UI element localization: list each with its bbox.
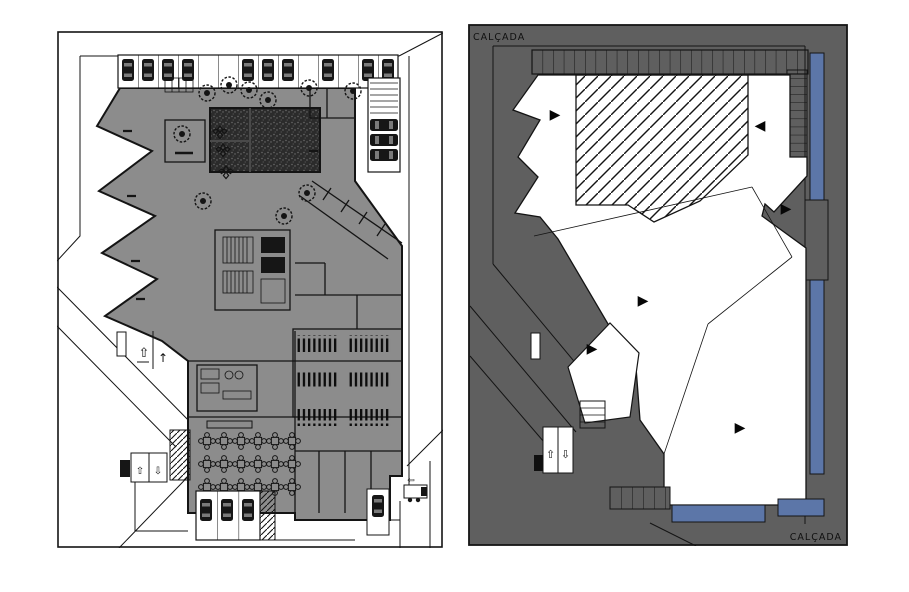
sidewalk-label-top: CALÇADA xyxy=(473,32,525,43)
site-plan-panel: CALÇADA ▶ ◀ ▶ ▶ ▶ ▶ ⇧ ⇩ xyxy=(468,24,848,546)
direction-marker: ◀ xyxy=(755,118,766,134)
ramp-down-arrow: ⇩ xyxy=(154,466,162,477)
blue-strip xyxy=(810,280,824,474)
sidewalk-label-bottom: CALÇADA xyxy=(790,532,842,543)
entry-door xyxy=(117,332,126,356)
blue-strip xyxy=(810,53,824,200)
blue-strip xyxy=(672,505,765,522)
direction-marker: ▶ xyxy=(587,341,598,357)
site-entry-door xyxy=(531,333,540,359)
direction-marker: ▶ xyxy=(638,293,649,309)
blue-strip xyxy=(778,499,824,516)
ramp-up-arrow: ⇧ xyxy=(546,448,555,461)
garage-column xyxy=(368,78,400,172)
drawing-sheet: ⇧ ↑ ⇧ ⇩ ⇦ xyxy=(0,0,909,592)
ramp-up-arrow: ⇧ xyxy=(136,466,144,477)
ramp-up-arrow-thin: ↑ xyxy=(158,351,168,365)
hatched-ramp-strip xyxy=(170,430,190,480)
parking-strip xyxy=(532,50,808,74)
direction-marker: ▶ xyxy=(735,420,746,436)
ramp-up-arrow: ⇧ xyxy=(139,346,150,361)
direction-marker: ▶ xyxy=(550,107,561,123)
ramp-down-arrow: ⇩ xyxy=(561,448,570,461)
floor-plan-panel: ⇧ ↑ ⇧ ⇩ ⇦ xyxy=(57,31,443,548)
truck-direction-arrow: ⇦ xyxy=(407,476,415,486)
parking-row-top xyxy=(118,55,398,88)
direction-marker: ▶ xyxy=(781,201,792,217)
